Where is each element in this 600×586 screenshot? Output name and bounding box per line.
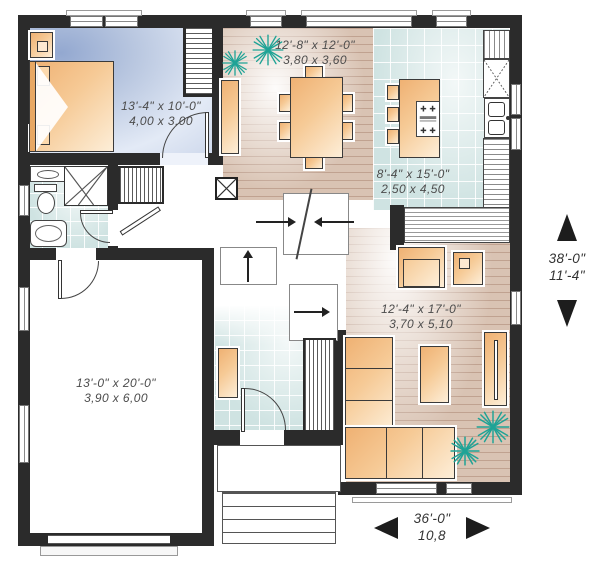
island-stool	[387, 129, 399, 144]
garage-door-opening-top	[56, 248, 96, 260]
garage-window	[19, 287, 29, 331]
porch-steps	[222, 492, 336, 544]
wall-kitchen-counter-stub	[390, 205, 404, 250]
bathtub	[30, 220, 67, 247]
dining-window-large	[306, 16, 412, 27]
closet-wall	[183, 94, 212, 97]
floor-plan: 13'-4" x 10'-0" 4,00 x 3,00 12'-8" x 12'…	[0, 0, 600, 586]
sectional-sofa	[345, 337, 393, 433]
x-brace-icon	[217, 179, 236, 198]
refrigerator	[483, 30, 510, 59]
stair-arrow	[256, 221, 290, 223]
dimension-arrow-right-icon	[466, 517, 490, 539]
kitchen-metric: 2,50 x 4,50	[377, 182, 450, 197]
corner-cabinet-icon	[484, 60, 509, 97]
living-imperial: 12'-4" x 17'-0"	[381, 302, 461, 317]
kitchen-window-right	[511, 84, 521, 115]
plant-icon	[222, 50, 248, 76]
dimension-arrow-down-icon	[557, 300, 577, 327]
dining-table	[290, 77, 343, 158]
dining-chair	[305, 157, 323, 169]
dimension-arrow-up-icon	[557, 214, 577, 241]
living-label: 12'-4" x 17'-0" 3,70 x 5,10	[381, 302, 461, 333]
wall-garage-top	[18, 248, 214, 260]
garage-window	[19, 405, 29, 463]
width-dimension: 36'-0" 10,8	[414, 510, 451, 545]
wall-garage-right	[202, 248, 214, 546]
vanity	[30, 166, 66, 182]
dining-imperial: 12'-8" x 12'-0"	[275, 38, 355, 53]
bathroom-window	[19, 185, 29, 216]
armchair	[398, 247, 445, 288]
window-sill	[352, 497, 512, 503]
toilet-bowl	[37, 192, 55, 214]
kitchen-window-top	[436, 16, 467, 27]
island-stool	[387, 85, 399, 100]
sideboard	[221, 80, 239, 154]
porch	[217, 445, 341, 492]
dining-metric: 3,80 x 3,60	[275, 53, 355, 68]
kitchen-label: 8'-4" x 15'-0" 2,50 x 4,50	[377, 167, 450, 198]
living-window-bottom	[446, 483, 472, 494]
kitchen-bar-counter	[404, 207, 510, 243]
stair-arrow	[294, 311, 324, 313]
stair-arrow	[247, 256, 249, 282]
living-metric: 3,70 x 5,10	[381, 317, 461, 332]
corner-cabinet	[483, 59, 510, 98]
corner-shower	[64, 166, 108, 206]
width-imperial: 36'-0"	[414, 510, 451, 527]
blanket-fold	[36, 63, 68, 151]
coffee-table	[420, 346, 449, 403]
entry-bench	[218, 348, 238, 398]
bedroom-imperial: 13'-4" x 10'-0"	[121, 99, 201, 114]
stair-arrow-head	[288, 217, 296, 227]
depth-imperial: 38'-0"	[549, 250, 586, 267]
front-door-opening	[240, 430, 284, 445]
stair-arrow-head	[243, 250, 253, 258]
garage-metric: 3,90 x 6,00	[76, 391, 156, 406]
living-window-right	[511, 291, 521, 325]
side-table	[453, 252, 483, 285]
garage-hall-door-ajar	[120, 206, 161, 235]
dimension-arrow-left-icon	[374, 517, 398, 539]
plant-icon	[476, 410, 510, 444]
kitchen-imperial: 8'-4" x 15'-0"	[377, 167, 450, 182]
bedroom-window	[70, 16, 103, 27]
stairs-lower-flight	[289, 284, 338, 341]
garage-overhead-door	[48, 535, 170, 544]
garage-apron	[40, 546, 178, 556]
chase-box	[215, 177, 238, 200]
width-metric: 10,8	[414, 527, 451, 544]
bedroom-label: 13'-4" x 10'-0" 4,00 x 3,00	[121, 99, 201, 130]
sectional-sofa	[345, 427, 455, 479]
bedroom-closet	[186, 28, 212, 94]
bedroom-window	[105, 16, 138, 27]
bedroom-metric: 4,00 x 3,00	[121, 114, 201, 129]
closet-wall	[183, 28, 186, 97]
burner-icon	[417, 102, 439, 136]
shower-glass-icon	[65, 167, 107, 205]
kitchen-sink	[484, 98, 510, 138]
coat-closet	[118, 166, 164, 204]
entry-closet	[303, 338, 336, 432]
nightstand	[30, 32, 53, 58]
stair-arrow-head	[314, 217, 322, 227]
bed	[29, 61, 114, 152]
depth-dimension: 38'-0" 11'-4"	[549, 250, 586, 285]
dining-window-small	[250, 16, 282, 27]
toilet	[34, 184, 57, 192]
cooktop	[416, 101, 440, 137]
dining-label: 12'-8" x 12'-0" 3,80 x 3,60	[275, 38, 355, 69]
tv-unit	[484, 332, 507, 406]
depth-metric: 11'-4"	[549, 267, 586, 284]
stair-arrow-head	[322, 307, 330, 317]
stair-arrow	[322, 221, 354, 223]
garage-label: 13'-0" x 20'-0" 3,90 x 6,00	[76, 376, 156, 407]
island-stool	[387, 107, 399, 122]
living-window-bottom	[376, 483, 437, 494]
kitchen-window-right	[511, 118, 521, 150]
garage-imperial: 13'-0" x 20'-0"	[76, 376, 156, 391]
